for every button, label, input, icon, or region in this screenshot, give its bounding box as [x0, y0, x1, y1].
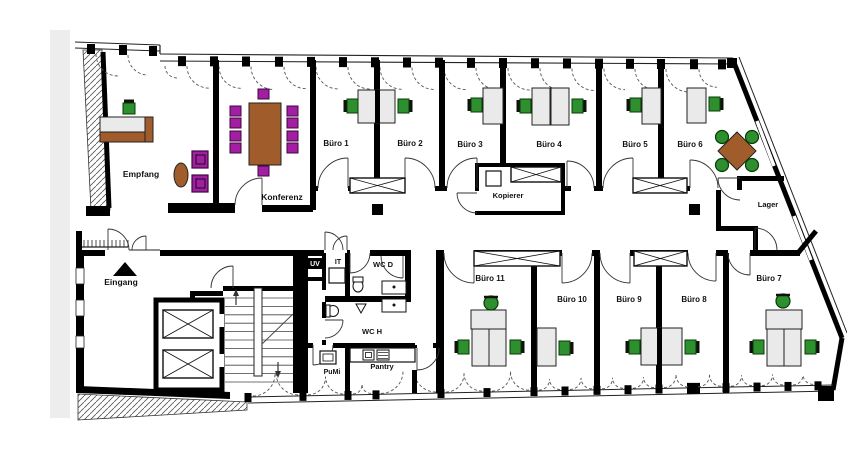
wall-segment [412, 370, 417, 393]
chair-icon [630, 98, 641, 112]
wall-segment [753, 228, 758, 253]
wall-segment [716, 226, 758, 231]
chair-back [517, 100, 520, 112]
wall-segment [405, 253, 411, 302]
facade-mullion [87, 44, 95, 54]
wall-segment [723, 253, 729, 393]
facade-pier-wide [687, 383, 700, 394]
wall-segment [168, 203, 235, 213]
facade-pier [562, 387, 569, 396]
conference-chair-icon [230, 106, 241, 116]
wall-segment [372, 204, 383, 215]
wall-segment [375, 90, 380, 123]
desk [483, 88, 503, 124]
pantry-sink-basin [366, 353, 372, 358]
round-chair-icon [746, 159, 759, 172]
desk [766, 310, 802, 329]
facade-mullion [339, 57, 347, 67]
wall-window-gap [76, 336, 84, 348]
wall-segment [322, 340, 326, 345]
wall-segment [370, 250, 411, 256]
washbasin-tap [393, 304, 396, 307]
chair-icon [510, 340, 521, 354]
wall-segment [308, 343, 313, 348]
pumi-sink-basin [323, 354, 333, 361]
chair-icon [559, 341, 570, 355]
desk [471, 310, 506, 329]
room-label-uv: UV [310, 261, 320, 268]
chair-icon [458, 340, 469, 354]
wall-segment [594, 253, 600, 393]
wall-segment [308, 277, 325, 281]
facade-pier [484, 388, 491, 397]
desk [537, 328, 556, 366]
chair-icon [471, 98, 482, 112]
chair-back [584, 100, 587, 112]
desk [767, 329, 784, 366]
facade-mullion [467, 58, 475, 68]
chair-back [750, 341, 753, 353]
chair-back [455, 341, 458, 353]
room-label-buero-6: Büro 6 [677, 140, 703, 149]
facade-pier [754, 383, 761, 392]
base-layer [0, 0, 847, 466]
room-label-konferenz: Konferenz [261, 192, 303, 202]
wall-segment [333, 343, 415, 348]
wall-chunk [76, 231, 82, 253]
room-label-buero-5: Büro 5 [622, 140, 648, 149]
chair-back [817, 341, 820, 353]
room-label-wc-d: WC D [373, 260, 394, 269]
chair-back [410, 100, 413, 112]
conference-chair-icon [230, 131, 241, 141]
reception-counter [145, 117, 153, 142]
toilet-tank [353, 277, 363, 282]
room-label-wc-h: WC H [362, 327, 382, 336]
facade-mullion [718, 59, 726, 69]
elevator-door-gap [219, 314, 224, 327]
conference-table [249, 103, 281, 165]
conference-chair-icon [230, 118, 241, 128]
conference-chair-icon [230, 143, 241, 153]
chair-icon [753, 340, 764, 354]
room-label-buero-1: Büro 1 [323, 139, 349, 148]
elevator-door-gap [219, 354, 224, 367]
wall-segment [308, 250, 324, 256]
round-chair-icon [716, 131, 729, 144]
chair-icon [572, 99, 583, 113]
facade-mullion [626, 59, 634, 69]
conference-chair-icon [287, 131, 298, 141]
conference-chair-icon [258, 166, 269, 176]
desk [551, 88, 569, 125]
facade-mullion [531, 58, 539, 68]
facade-mullion [563, 58, 571, 68]
conference-chair-icon [287, 118, 298, 128]
desk [489, 329, 506, 366]
desk [532, 88, 550, 125]
coffee-table [174, 163, 188, 187]
chair-icon [123, 103, 135, 114]
server-rack [329, 268, 345, 283]
desk [100, 117, 145, 132]
facade-mullion [275, 57, 283, 67]
facade-pier [785, 382, 792, 391]
wall-segment [689, 204, 700, 215]
wall-segment [345, 348, 350, 393]
round-chair-icon [716, 159, 729, 172]
room-label-buero-9: Büro 9 [616, 295, 642, 304]
desk [687, 88, 706, 123]
room-label-lager: Lager [758, 200, 779, 209]
room-label-buero-8: Büro 8 [681, 295, 707, 304]
wall-segment [740, 176, 784, 181]
facade-mullion [242, 57, 250, 67]
kopierer-door-gap [474, 191, 480, 211]
chair-back [468, 99, 471, 111]
wall-window-gap [76, 268, 84, 284]
armchair-icon [192, 151, 208, 168]
wall-segment [596, 60, 602, 191]
desk [784, 329, 801, 366]
wall-segment [716, 190, 721, 230]
washbasin-tap [393, 286, 396, 289]
wall-segment [594, 186, 603, 191]
wall-segment [322, 302, 326, 318]
room-label-pantry: Pantry [370, 362, 394, 371]
chair-back [627, 99, 630, 111]
chair-icon [347, 99, 358, 113]
room-label-kopierer: Kopierer [493, 191, 524, 200]
wall-segment [531, 266, 537, 393]
room-label-buero-2: Büro 2 [397, 139, 423, 148]
wall-segment [310, 186, 318, 191]
facade-pier [373, 390, 380, 399]
room-label-buero-10: Büro 10 [557, 295, 587, 304]
wall-segment [84, 250, 105, 256]
room-label-buero-3: Büro 3 [457, 140, 483, 149]
room-label-empfang: Empfang [123, 169, 159, 179]
desk [642, 88, 661, 124]
chair-back [344, 100, 347, 112]
wall-segment [345, 253, 350, 297]
room-label-eingang: Eingang [104, 277, 138, 287]
chair-back [571, 342, 574, 354]
room-label-buero-11: Büro 11 [475, 274, 505, 283]
chair-back [697, 341, 700, 353]
conference-chair-icon [287, 143, 298, 153]
facade-mullion [403, 57, 411, 67]
chair-icon [520, 99, 531, 113]
facade-mullion [178, 56, 186, 66]
facade-pier [300, 392, 307, 401]
chair-icon [629, 340, 640, 354]
wall-segment [439, 60, 445, 191]
chair-icon [398, 99, 409, 113]
facade-mullion [690, 59, 698, 69]
wall-segment [433, 343, 444, 348]
chair-back [721, 98, 724, 110]
round-chair-icon [746, 131, 759, 144]
wall-segment [213, 60, 219, 210]
chair-icon [709, 97, 720, 111]
room-label-pumi: PuMi [324, 369, 341, 376]
facade-pier [625, 385, 632, 394]
chair-back [522, 341, 525, 353]
toilet-tank [326, 305, 330, 317]
facade-mullion [149, 46, 157, 56]
facade-corner-chunk [818, 386, 834, 401]
chair-icon [685, 340, 696, 354]
wall-segment [436, 253, 444, 393]
conference-chair-icon [287, 106, 298, 116]
copier [486, 171, 501, 186]
room-label-buero-7: Büro 7 [756, 274, 782, 283]
room-label-it: IT [335, 259, 342, 266]
wall-segment [293, 253, 308, 393]
wall-window-gap [76, 300, 84, 316]
conference-chair-icon [258, 89, 269, 99]
facade-mullion [119, 45, 127, 55]
chair-back [124, 100, 134, 103]
wall-chunk [86, 206, 110, 216]
room-label-buero-4: Büro 4 [536, 140, 562, 149]
stair-stringer [254, 288, 262, 376]
wall-segment [435, 186, 447, 191]
armchair-icon [192, 175, 208, 192]
canvas-edge-strip [50, 30, 70, 418]
facade-pier [245, 393, 252, 402]
floor-plan-page: EmpfangKonferenzBüro 1Büro 2Büro 3Büro 4… [0, 0, 847, 466]
wall-segment [262, 205, 313, 212]
chair-icon [805, 340, 816, 354]
desk [472, 329, 489, 366]
wall-segment [657, 328, 662, 366]
chair-back [626, 341, 629, 353]
wall-segment [160, 250, 308, 256]
floor-plan-svg: EmpfangKonferenzBüro 1Büro 2Büro 3Büro 4… [0, 0, 847, 466]
